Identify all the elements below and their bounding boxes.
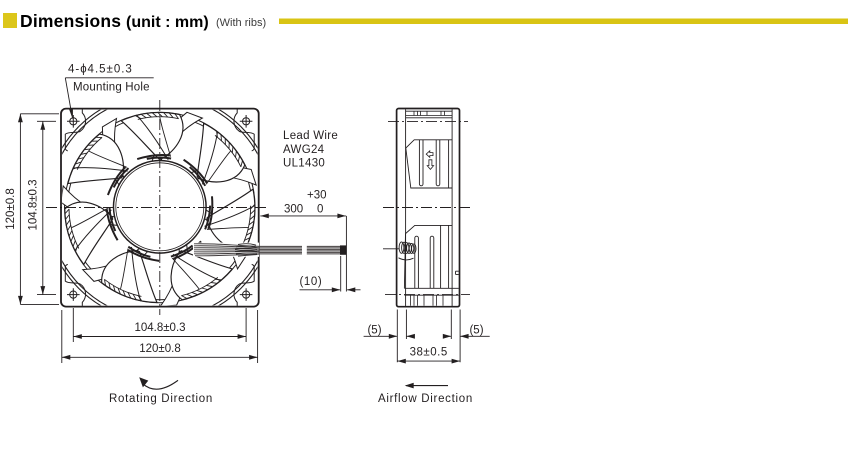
- svg-text:(unit : mm): (unit : mm): [126, 14, 209, 31]
- svg-text:104.8±0.3: 104.8±0.3: [28, 179, 40, 230]
- svg-text:120±0.8: 120±0.8: [139, 343, 181, 355]
- svg-text:Rotating Direction: Rotating Direction: [109, 393, 213, 405]
- svg-text:(5): (5): [469, 325, 483, 337]
- svg-text:(10): (10): [300, 276, 323, 288]
- svg-text:AWG24: AWG24: [283, 144, 325, 156]
- svg-text:Mounting Hole: Mounting Hole: [73, 82, 150, 94]
- svg-text:120±0.8: 120±0.8: [5, 188, 17, 230]
- svg-text:(5): (5): [367, 325, 381, 337]
- svg-text:38±0.5: 38±0.5: [410, 347, 448, 359]
- svg-text:Airflow Direction: Airflow Direction: [378, 393, 473, 405]
- svg-text:(With ribs): (With ribs): [216, 17, 266, 29]
- svg-text:Lead Wire: Lead Wire: [283, 130, 338, 142]
- svg-text:+30: +30: [307, 190, 327, 202]
- svg-text:300: 300: [284, 204, 303, 216]
- svg-text:UL1430: UL1430: [283, 158, 325, 170]
- svg-text:4-ɸ4.5±0.3: 4-ɸ4.5±0.3: [68, 64, 133, 76]
- svg-text:Dimensions: Dimensions: [20, 11, 121, 31]
- svg-text:0: 0: [317, 204, 323, 216]
- svg-text:104.8±0.3: 104.8±0.3: [134, 322, 185, 334]
